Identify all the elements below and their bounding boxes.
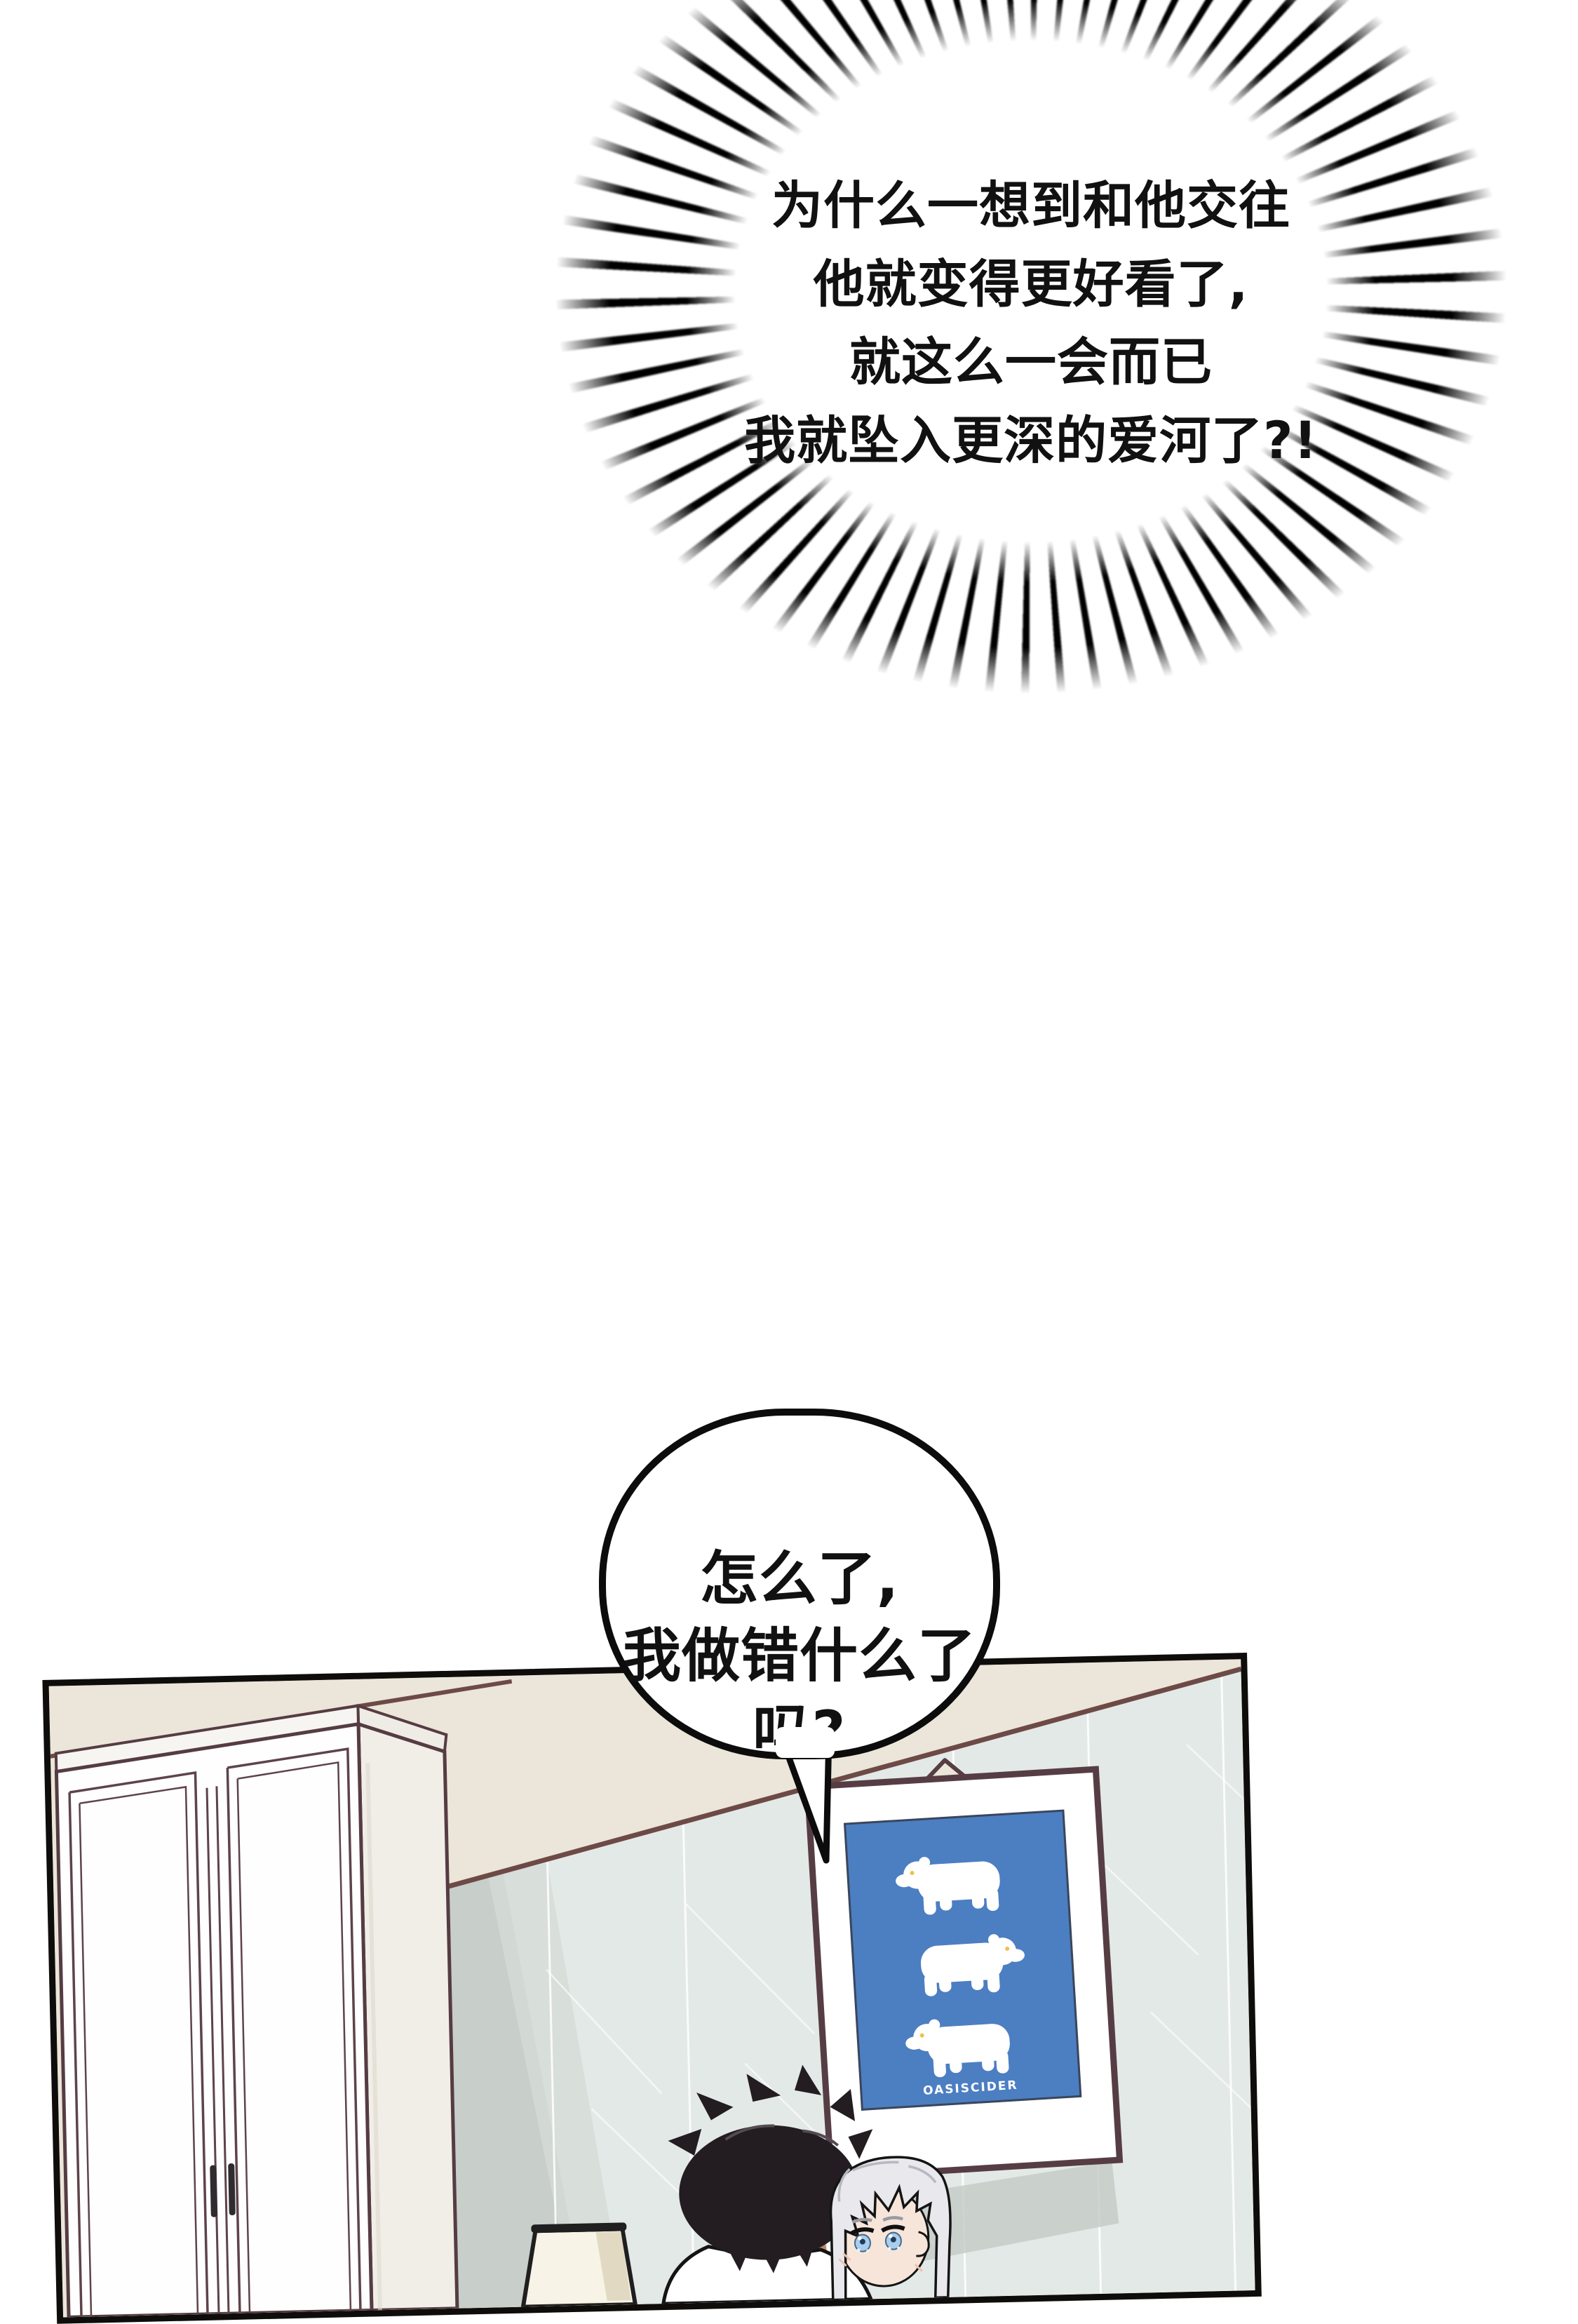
wardrobe (55, 1704, 459, 2317)
speech-bubble: 怎么了, 我做错什么了吗? (599, 1409, 1000, 1759)
wardrobe-front (55, 1724, 372, 2318)
door-handle (228, 2163, 236, 2215)
table-lamp (521, 2222, 635, 2307)
door-handle (210, 2165, 217, 2217)
speech-bubble-tail-joint (776, 1727, 835, 1758)
burst-monologue-text: 为什么一想到和他交往 他就变得更好看了, 就这么一会而已 我就坠入更深的爱河了?… (540, 167, 1522, 481)
